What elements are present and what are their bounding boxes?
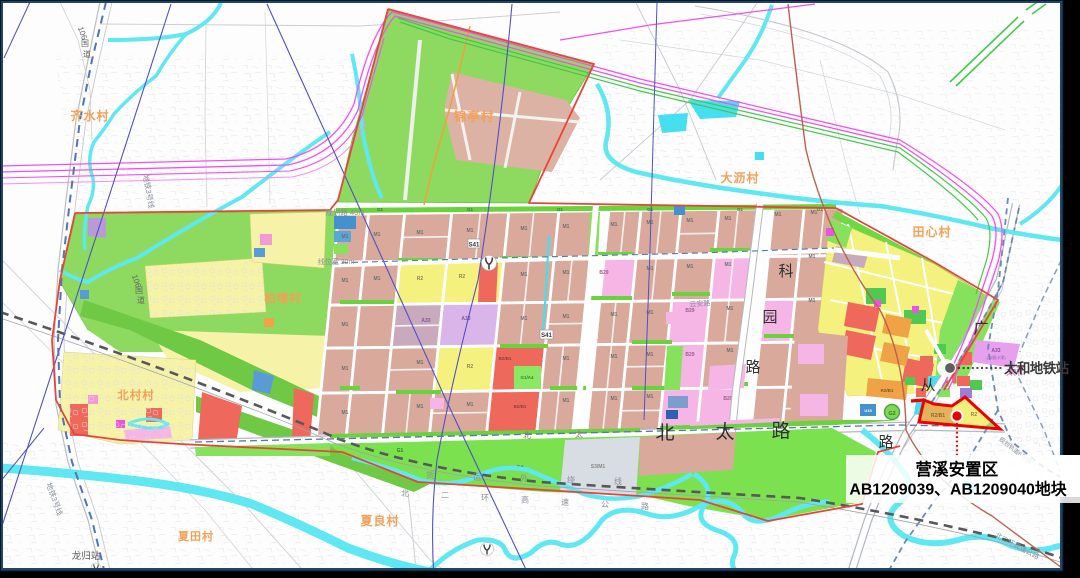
svg-text:G1: G1 [737, 207, 744, 212]
svg-text:M1: M1 [611, 354, 618, 360]
svg-text:G1: G1 [557, 207, 564, 212]
svg-text:广: 广 [973, 320, 988, 337]
svg-text:线: 线 [614, 476, 622, 486]
svg-text:线位宽 30m: 线位宽 30m [318, 257, 355, 266]
svg-text:运: 运 [473, 473, 481, 482]
svg-text:太: 太 [575, 429, 583, 439]
svg-text:S41: S41 [541, 333, 552, 339]
svg-text:G1/A4: G1/A4 [520, 375, 534, 380]
svg-text:M1: M1 [647, 394, 654, 400]
svg-text:M1: M1 [647, 352, 654, 358]
svg-text:路: 路 [771, 420, 790, 442]
svg-text:夏田村: 夏田村 [178, 529, 214, 543]
svg-text:M1: M1 [725, 216, 732, 222]
svg-text:G1: G1 [397, 448, 404, 454]
svg-text:M1: M1 [417, 404, 424, 410]
svg-text:国: 国 [81, 39, 89, 48]
svg-text:大沥村: 大沥村 [720, 170, 759, 185]
svg-text:M1: M1 [727, 306, 734, 312]
svg-text:G2: G2 [888, 411, 895, 417]
svg-text:M1: M1 [687, 264, 694, 270]
svg-text:R2/B1: R2/B1 [881, 388, 894, 393]
svg-text:M1: M1 [809, 298, 816, 304]
svg-text:B29: B29 [599, 270, 608, 276]
svg-text:国: 国 [135, 286, 143, 295]
svg-text:北: 北 [401, 489, 409, 498]
svg-text:M1: M1 [342, 278, 349, 284]
svg-text:M1: M1 [417, 360, 424, 366]
svg-text:M1: M1 [374, 276, 381, 282]
svg-text:太: 太 [715, 421, 734, 443]
svg-text:A33: A33 [461, 316, 470, 322]
svg-text:B29: B29 [685, 352, 694, 358]
svg-text:锦亭村: 锦亭村 [454, 109, 495, 124]
svg-text:M1: M1 [467, 402, 474, 408]
svg-text:M1: M1 [611, 222, 618, 228]
svg-text:M1: M1 [563, 270, 570, 276]
svg-text:M1: M1 [647, 220, 654, 226]
svg-text:柏塘村: 柏塘村 [264, 291, 302, 305]
svg-text:G1: G1 [647, 207, 654, 212]
svg-text:B2/B1: B2/B1 [499, 356, 512, 361]
svg-text:S3/M1: S3/M1 [591, 464, 606, 470]
svg-text:营溪安置区: 营溪安置区 [916, 460, 999, 479]
svg-text:夏良村: 夏良村 [360, 513, 399, 528]
svg-text:环: 环 [481, 493, 489, 502]
svg-text:R2: R2 [459, 274, 466, 280]
svg-text:M1: M1 [563, 224, 570, 230]
svg-text:道: 道 [137, 295, 145, 305]
svg-text:外: 外 [520, 473, 528, 483]
svg-text:齐水村: 齐水村 [70, 108, 109, 123]
svg-text:绕: 绕 [567, 475, 575, 485]
svg-text:G1: G1 [467, 207, 474, 212]
svg-text:M1: M1 [811, 210, 818, 216]
svg-text:田心村: 田心村 [912, 224, 951, 239]
svg-text:太和地铁站: 太和地铁站 [1004, 360, 1070, 376]
svg-text:A33: A33 [991, 348, 1000, 354]
svg-text:道: 道 [83, 49, 91, 59]
svg-text:M1: M1 [521, 272, 528, 278]
svg-text:园: 园 [762, 309, 777, 326]
svg-text:M1: M1 [687, 218, 694, 224]
svg-text:AB1209039、AB1209040地块: AB1209039、AB1209040地块 [849, 480, 1066, 499]
svg-text:龙归站: 龙归站 [72, 550, 101, 562]
svg-text:B2/B1: B2/B1 [514, 404, 527, 409]
svg-text:M1: M1 [342, 410, 349, 416]
svg-text:北: 北 [655, 422, 674, 444]
svg-text:M1: M1 [809, 254, 816, 260]
svg-text:M1: M1 [467, 228, 474, 234]
svg-text:从: 从 [920, 377, 935, 394]
svg-text:U15: U15 [864, 408, 872, 413]
svg-text:北: 北 [523, 431, 531, 440]
svg-text:M1: M1 [521, 316, 528, 322]
svg-text:科: 科 [778, 263, 793, 280]
svg-text:R2/B1: R2/B1 [931, 413, 945, 419]
svg-text:M1: M1 [727, 348, 734, 354]
svg-text:M1: M1 [374, 232, 381, 238]
svg-text:规划路 40m: 规划路 40m [325, 207, 364, 217]
svg-text:北村村: 北村村 [117, 388, 155, 402]
svg-text:路: 路 [878, 434, 893, 451]
svg-text:G1: G1 [377, 207, 384, 212]
svg-text:M1: M1 [611, 312, 618, 318]
svg-text:R2: R2 [971, 412, 978, 418]
svg-text:M1: M1 [563, 314, 570, 320]
svg-text:货: 货 [426, 470, 434, 480]
svg-text:高: 高 [521, 495, 529, 505]
svg-text:M1: M1 [342, 366, 349, 372]
svg-text:M1: M1 [563, 356, 570, 362]
svg-text:M1: M1 [563, 398, 570, 404]
svg-text:S41: S41 [469, 243, 480, 249]
svg-text:M1: M1 [342, 322, 349, 328]
svg-text:速: 速 [561, 498, 569, 507]
svg-text:二: 二 [441, 491, 449, 500]
svg-text:M1: M1 [417, 230, 424, 236]
svg-text:路: 路 [641, 501, 649, 511]
svg-text:R2: R2 [467, 364, 474, 370]
svg-text:公: 公 [601, 500, 609, 509]
svg-text:B29: B29 [685, 308, 694, 314]
svg-text:M1: M1 [611, 396, 618, 402]
svg-text:R2: R2 [417, 276, 424, 282]
svg-text:M1: M1 [775, 212, 782, 218]
svg-text:M1: M1 [725, 262, 732, 268]
svg-text:M1: M1 [342, 234, 349, 240]
svg-text:M1: M1 [521, 226, 528, 232]
svg-text:A33: A33 [421, 318, 430, 324]
svg-text:M1: M1 [647, 266, 654, 272]
svg-text:路: 路 [745, 359, 760, 376]
